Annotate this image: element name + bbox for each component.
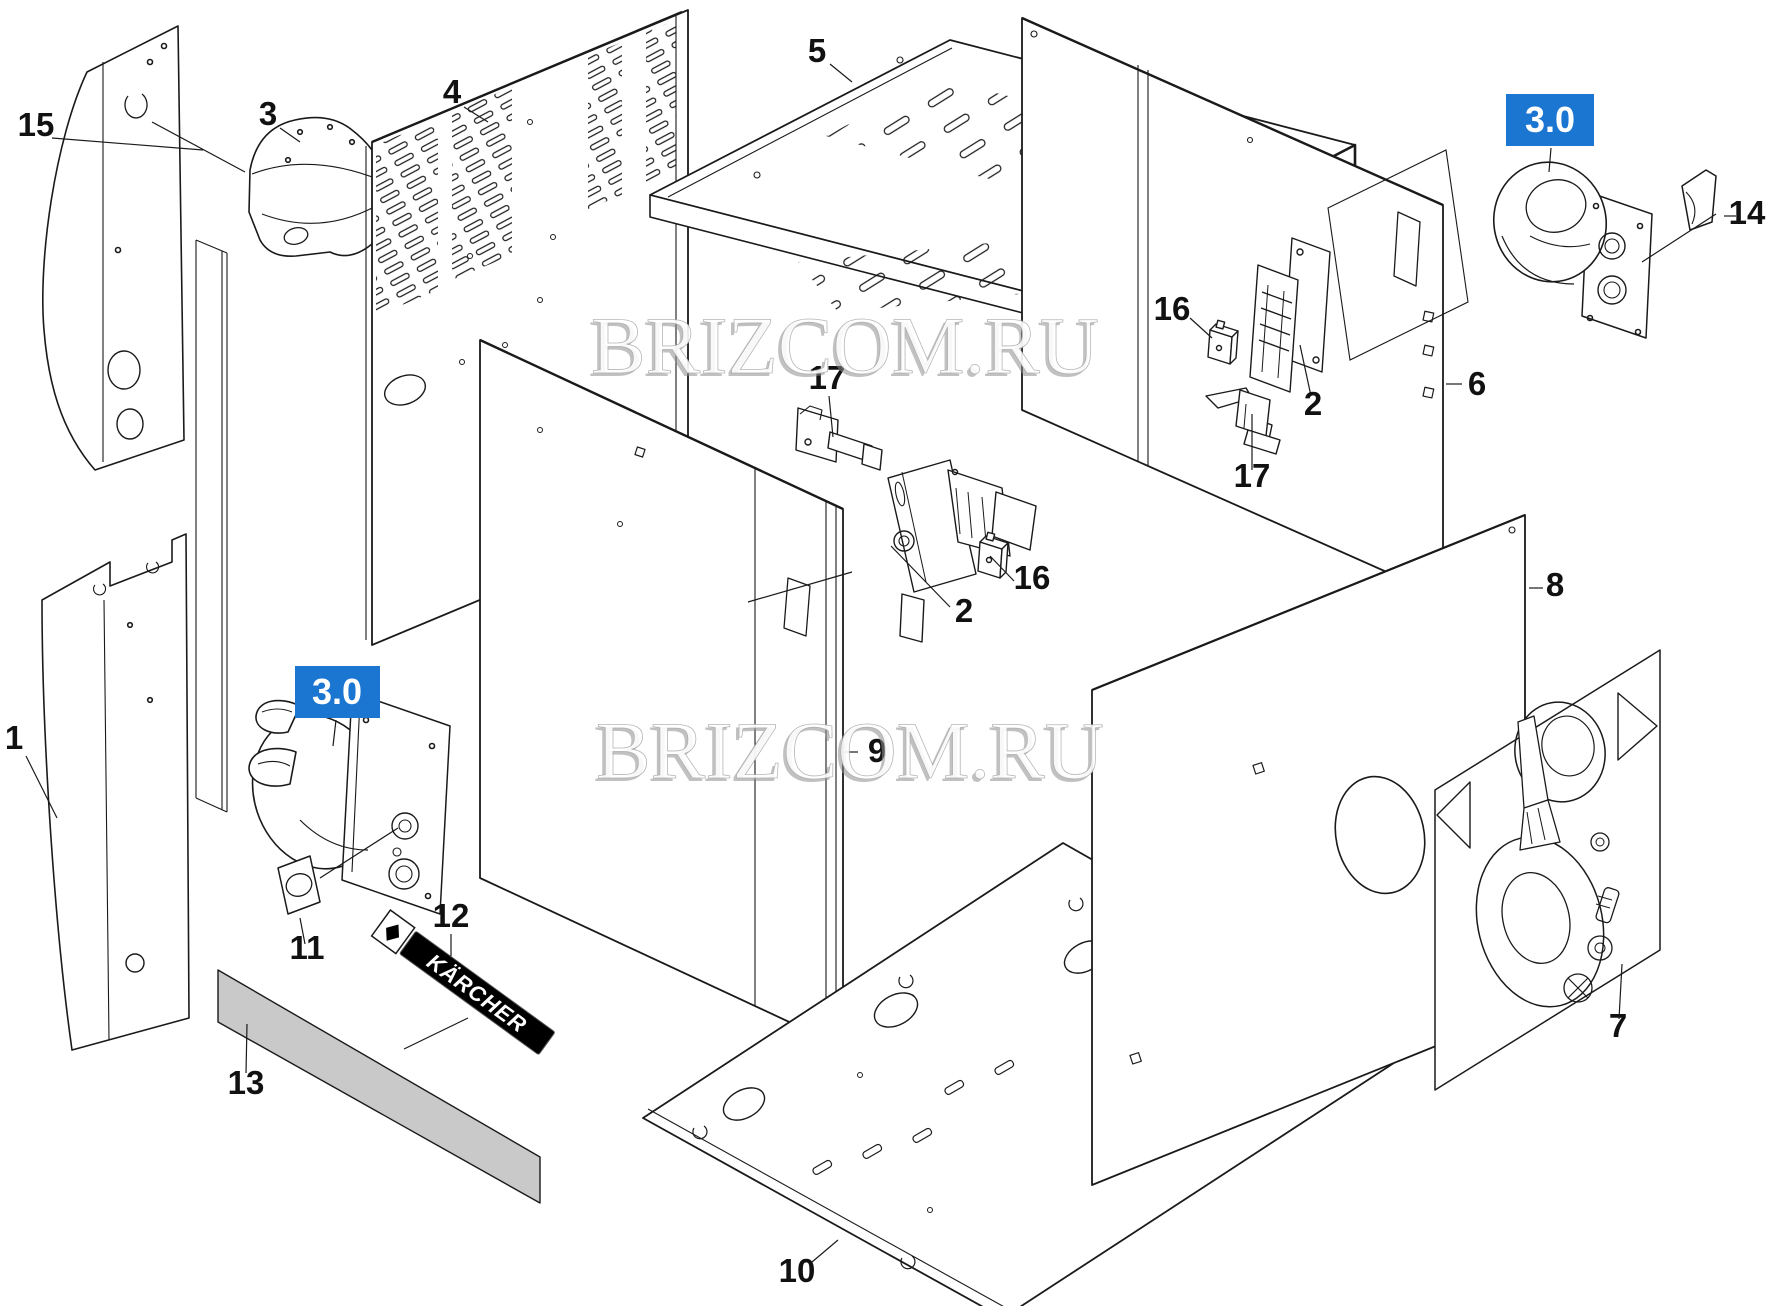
burner-module-lower-left	[233, 692, 450, 914]
brand-sticker-text: KÄRCHER	[422, 949, 531, 1038]
part-label-16-center: 16	[1014, 559, 1051, 596]
part-label-10: 10	[779, 1252, 816, 1289]
part-label-1: 1	[5, 719, 23, 756]
watermark-text: BRIZCOM.RU	[596, 705, 1104, 796]
part-label-8: 8	[1546, 566, 1564, 603]
part-label-14: 14	[1729, 194, 1766, 231]
part-17-bracket-center	[796, 406, 882, 470]
part-label-13: 13	[228, 1064, 265, 1101]
part-1-side-panel	[42, 534, 189, 1050]
watermark-lower: BRIZCOM.RU BRIZCOM.RU	[593, 705, 1104, 799]
badge-3-0-lower-left: 3.0	[295, 666, 380, 718]
badge-text: 3.0	[1525, 99, 1575, 140]
watermark-upper: BRIZCOM.RU BRIZCOM.RU	[588, 300, 1099, 394]
diagram-canvas: KÄRCHER 15 3 4	[0, 0, 1766, 1306]
part-label-7: 7	[1609, 1007, 1627, 1044]
part-14-clip	[1682, 170, 1716, 230]
part-9-front-panel	[480, 340, 843, 1047]
exploded-parts-diagram: KÄRCHER 15 3 4	[0, 0, 1766, 1306]
badge-3-0-top-right: 3.0	[1506, 94, 1594, 146]
part-label-16-right: 16	[1154, 290, 1191, 327]
part-label-12: 12	[433, 897, 470, 934]
part-label-5: 5	[808, 32, 826, 69]
part-label-15: 15	[18, 106, 55, 143]
part-label-2-right: 2	[1304, 385, 1322, 422]
part-label-2-center: 2	[955, 592, 973, 629]
part-15-side-panel	[43, 26, 184, 470]
part-label-17-right: 17	[1234, 457, 1271, 494]
watermark-text: BRIZCOM.RU	[591, 300, 1099, 391]
part-label-3: 3	[259, 95, 277, 132]
burner-module-top-right	[1481, 150, 1652, 338]
part-3-corner-cover	[249, 118, 385, 257]
part-label-6: 6	[1468, 365, 1486, 402]
part-label-11: 11	[290, 929, 325, 966]
mounting-plane-left	[196, 240, 227, 812]
badge-text: 3.0	[312, 671, 362, 712]
part-label-4: 4	[443, 73, 462, 110]
